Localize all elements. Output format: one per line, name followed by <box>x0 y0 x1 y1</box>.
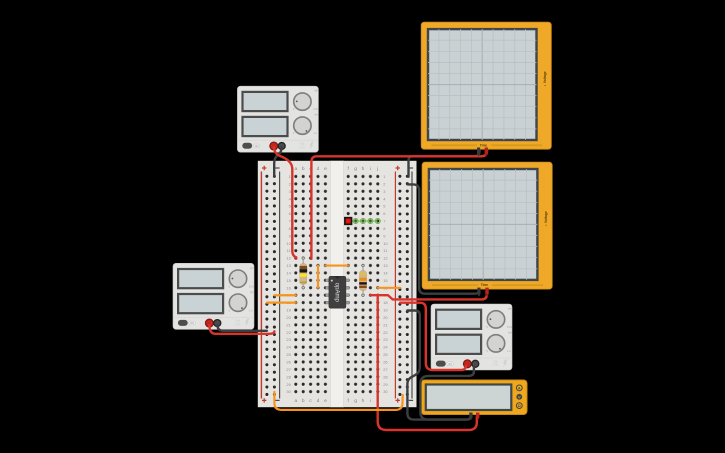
svg-text:18: 18 <box>383 300 388 305</box>
svg-text:6.5V: 6.5V <box>249 284 255 288</box>
svg-text:ON: ON <box>190 322 194 325</box>
svg-text:h: h <box>362 398 365 404</box>
svg-text:1 A: 1 A <box>313 131 317 135</box>
svg-text:13: 13 <box>286 263 291 268</box>
svg-text:25: 25 <box>286 352 291 357</box>
svg-text:h: h <box>362 166 365 172</box>
svg-text:V: V <box>518 395 521 399</box>
svg-text:opAmp: opAmp <box>333 283 339 303</box>
svg-text:15: 15 <box>383 278 388 283</box>
svg-text:19: 19 <box>383 308 388 313</box>
svg-text:◎≈: ◎≈ <box>314 89 318 93</box>
svg-text:27: 27 <box>286 367 291 372</box>
svg-text:23: 23 <box>286 337 291 342</box>
svg-text:1 A: 1 A <box>507 349 511 353</box>
svg-text:19: 19 <box>286 308 291 313</box>
svg-text:a: a <box>294 167 297 172</box>
svg-text:29: 29 <box>383 382 388 387</box>
svg-text:◎≈: ◎≈ <box>250 266 254 270</box>
svg-text:6.5V: 6.5V <box>313 107 319 111</box>
svg-text:14: 14 <box>383 271 388 276</box>
svg-text:26: 26 <box>286 360 291 365</box>
svg-text:20: 20 <box>286 315 291 320</box>
svg-text:◐ Voltage: ◐ Voltage <box>543 71 547 86</box>
svg-text:Time: Time <box>480 143 488 147</box>
svg-text:15: 15 <box>286 278 291 283</box>
svg-text:g: g <box>354 399 357 404</box>
svg-text:27: 27 <box>383 367 388 372</box>
svg-text:23: 23 <box>383 337 388 342</box>
svg-text:◎≈: ◎≈ <box>250 290 254 294</box>
svg-text:26: 26 <box>383 360 388 365</box>
svg-text:A: A <box>518 386 521 390</box>
svg-text:22: 22 <box>286 330 291 335</box>
svg-text:16: 16 <box>286 285 291 290</box>
svg-text:10: 10 <box>383 241 388 246</box>
svg-text:i: i <box>370 398 371 404</box>
svg-text:j: j <box>376 166 378 172</box>
svg-text:ON: ON <box>448 363 452 366</box>
svg-text:◐ Voltage: ◐ Voltage <box>544 211 548 226</box>
svg-text:e: e <box>324 167 327 172</box>
svg-text:Time: Time <box>481 283 489 287</box>
svg-text:12: 12 <box>286 256 291 261</box>
svg-text:10: 10 <box>286 241 291 246</box>
svg-text:29: 29 <box>286 382 291 387</box>
svg-text:◎≈: ◎≈ <box>508 331 512 335</box>
svg-text:a: a <box>294 399 297 404</box>
svg-text:LTD: LTD <box>235 323 242 327</box>
svg-text:b: b <box>302 398 305 404</box>
svg-text:LTD: LTD <box>493 363 500 367</box>
svg-text:28: 28 <box>286 374 291 379</box>
svg-text:21: 21 <box>383 322 388 327</box>
svg-text:13: 13 <box>383 263 388 268</box>
svg-text:20: 20 <box>383 315 388 320</box>
svg-text:◎≈: ◎≈ <box>508 307 512 311</box>
svg-text:14: 14 <box>286 271 291 276</box>
svg-text:ON: ON <box>255 145 259 148</box>
svg-text:24: 24 <box>383 345 388 350</box>
svg-text:28: 28 <box>383 374 388 379</box>
svg-text:◎≈: ◎≈ <box>314 113 318 117</box>
svg-text:e: e <box>324 399 327 404</box>
svg-text:6.5V: 6.5V <box>507 325 513 329</box>
svg-text:12: 12 <box>383 256 388 261</box>
svg-text:24: 24 <box>286 345 291 350</box>
svg-text:30: 30 <box>286 389 291 394</box>
svg-text:30: 30 <box>383 389 388 394</box>
svg-text:Ω: Ω <box>518 404 521 408</box>
svg-text:d: d <box>317 166 320 172</box>
svg-text:g: g <box>354 167 357 172</box>
svg-text:25: 25 <box>383 352 388 357</box>
svg-text:22: 22 <box>383 330 388 335</box>
svg-text:1 A: 1 A <box>249 308 253 312</box>
svg-text:i: i <box>370 166 371 172</box>
svg-text:LTD: LTD <box>299 145 306 149</box>
svg-text:d: d <box>317 398 320 404</box>
svg-text:b: b <box>302 166 305 172</box>
svg-text:21: 21 <box>286 322 291 327</box>
